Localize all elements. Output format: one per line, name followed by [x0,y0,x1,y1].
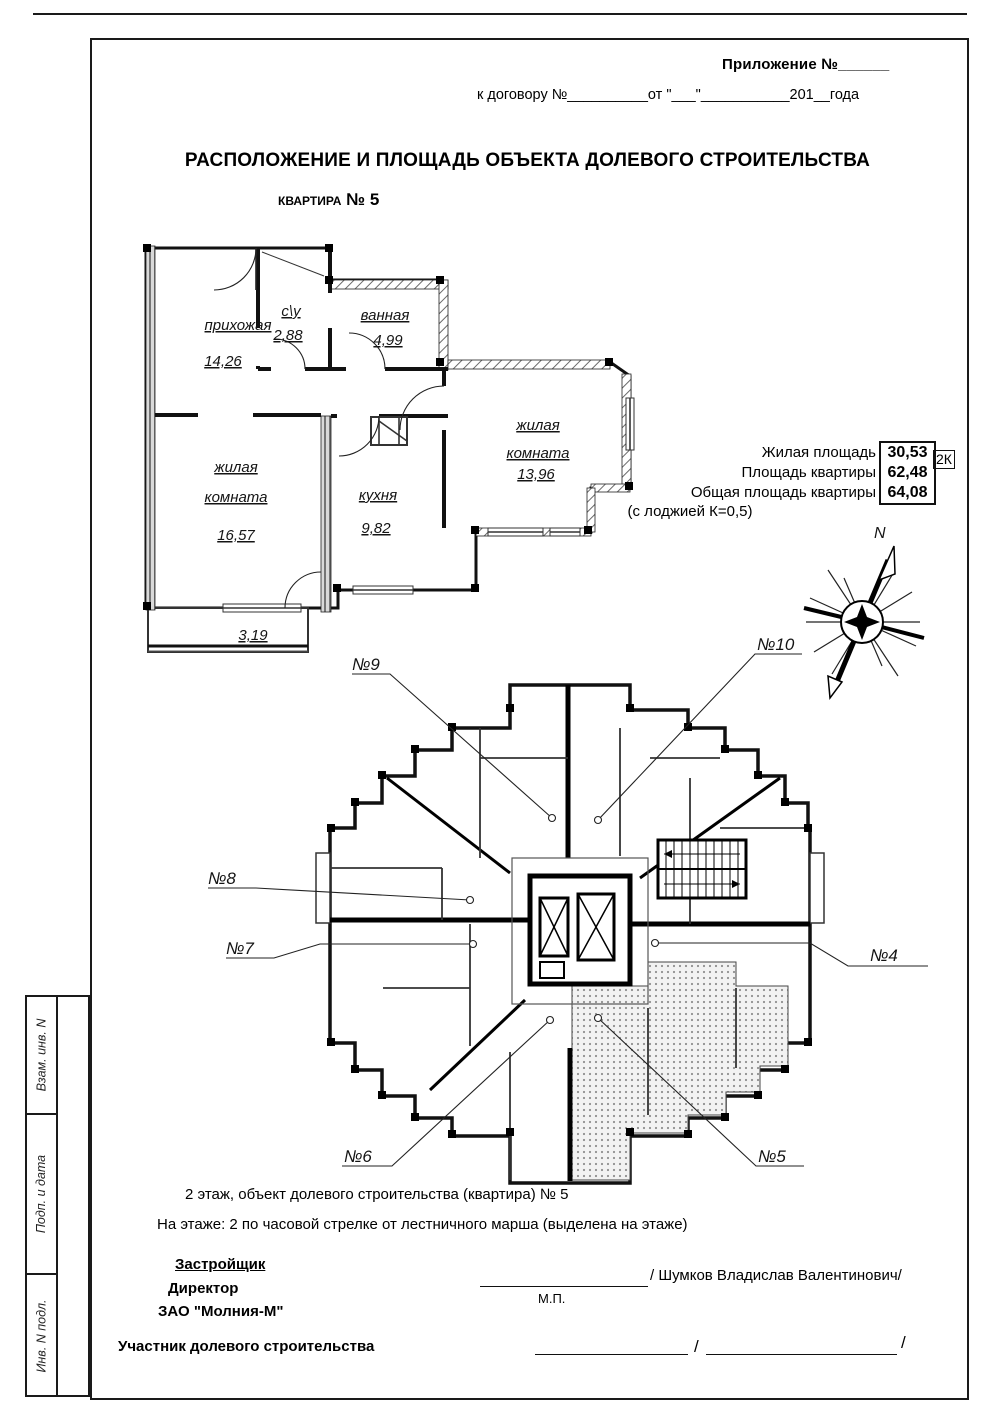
living-area-label: Жилая площадь [560,443,876,463]
stamp-cell-3: Инв. N подл. [27,1275,58,1397]
north-label: N [874,525,886,542]
area-summary-labels: Жилая площадь Площадь квартиры Общая пло… [560,443,876,503]
document-page: Приложение №______ к договору №_________… [0,0,1000,1414]
unit-label-4: №4 [870,946,898,965]
highlighted-apartment-5 [572,962,788,1180]
floor-plan: №9 №10 №8 №7 №4 №6 №5 [180,628,980,1203]
top-rule [33,13,967,15]
developer-signatory: / Шумков Владислав Валентинович/ [650,1267,902,1284]
room-wc-label: с\у [281,303,302,320]
position-description-line: На этаже: 2 по часовой стрелке от лестни… [157,1216,688,1233]
total-area-value: 64,08 [881,483,934,503]
area-summary-values: 30,53 62,48 64,08 [879,441,936,505]
stamp-row-1: Взам. инв. N [35,1019,49,1092]
participant-slash-2: / [901,1333,906,1353]
floor-description-line: 2 этаж, объект долевого строительства (к… [185,1186,568,1203]
room-living1-line2: комната [205,489,268,506]
participant-name-line [706,1354,897,1355]
appendix-number-line: Приложение №______ [722,56,889,73]
room-living2-line1: жилая [515,417,559,434]
participant-label: Участник долевого строительства [118,1338,374,1355]
total-area-label: Общая площадь квартиры [560,483,876,503]
unit-label-10: №10 [757,635,795,654]
loggia-coefficient-note: (с лоджией К=0,5) [560,503,820,520]
apartment-type-badge: 2К [933,450,955,469]
participant-slash-1: / [694,1337,699,1357]
unit-label-7: №7 [226,939,254,958]
unit-label-6: №6 [344,1147,372,1166]
stamp-cell-2: Подп. и дата [27,1115,58,1275]
flat-area-label: Площадь квартиры [560,463,876,483]
page-title: РАСПОЛОЖЕНИЕ И ПЛОЩАДЬ ОБЪЕКТА ДОЛЕВОГО … [92,150,963,172]
room-hallway-label: прихожая [205,317,272,334]
room-hallway-area: 14,26 [204,353,242,370]
room-bath-area: 4,99 [373,332,403,349]
developer-signature-line [480,1286,648,1287]
unit-label-8: №8 [208,869,236,888]
stamp-row-2: Подп. и дата [35,1155,49,1233]
apartment-subtitle: квартира № 5 [278,190,379,210]
elevator-core [530,876,630,984]
participant-signature-line [535,1354,688,1355]
staircase [658,840,746,898]
unit-label-9: №9 [352,655,380,674]
developer-role: Директор [168,1280,238,1297]
room-living1-line1: жилая [213,459,257,476]
living-area-value: 30,53 [881,443,934,463]
developer-company: ЗАО "Молния-М" [158,1303,283,1320]
room-kitchen-label: кухня [359,487,397,504]
contract-line: к договору №__________от "___"__________… [477,87,859,103]
stamp-place-mark: М.П. [538,1291,565,1306]
developer-heading: Застройщик [175,1256,265,1273]
room-living1-area: 16,57 [217,527,255,544]
room-bath-label: ванная [361,307,410,324]
room-wc-area: 2,88 [272,327,303,344]
stamp-cell-1: Взам. инв. N [27,997,58,1115]
flat-area-value: 62,48 [881,463,934,483]
room-kitchen-area: 9,82 [361,520,391,537]
unit-label-5: №5 [758,1147,786,1166]
room-living2-area: 13,96 [517,466,555,483]
title-block-side-column: Взам. инв. N Подп. и дата Инв. N подл. [25,995,90,1397]
stamp-row-3: Инв. N подл. [35,1299,49,1372]
